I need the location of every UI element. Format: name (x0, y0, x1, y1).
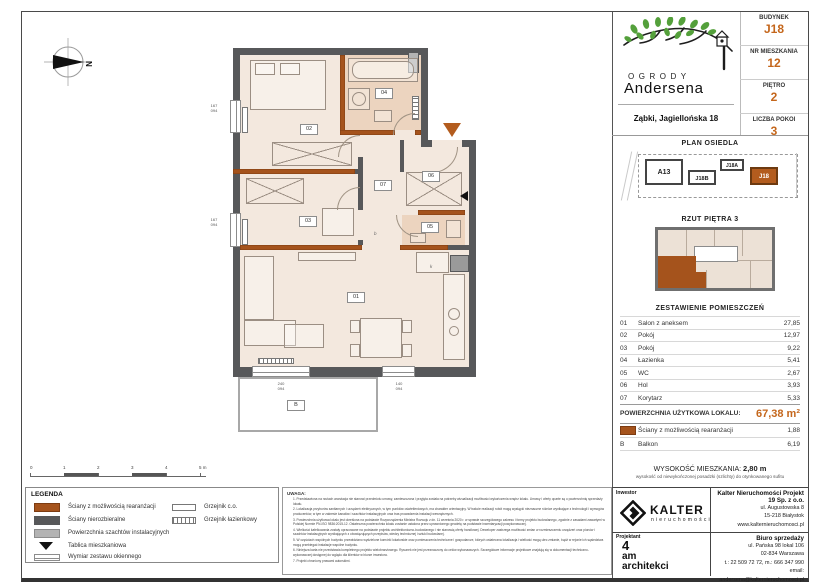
pillow (280, 63, 300, 75)
wall-right (469, 140, 476, 377)
project-address: Ząbki, Jagiellońska 18 (612, 104, 740, 134)
chair (402, 344, 412, 357)
chair (350, 320, 360, 333)
building-j18b: J18B (688, 170, 716, 185)
desk-room03 (322, 208, 354, 236)
legend-radiator-icon (172, 504, 196, 511)
kitchen-sink (448, 308, 460, 320)
wall-bottom-1 (233, 367, 252, 377)
wall-corridor-left-end (358, 240, 363, 245)
highlighted-apartment (658, 256, 696, 288)
title-block: Inwestor KALTER nieruchomości Kalter Nie… (612, 487, 808, 575)
wardrobe-room03 (246, 178, 304, 204)
orange-wall-wc-top (418, 210, 465, 215)
rooms-table-title: ZESTAWIENIE POMIESZCZEŃ (612, 305, 808, 312)
toilet (446, 220, 461, 238)
kitchen-mark: k (430, 264, 432, 269)
balcony-door-window (252, 366, 310, 377)
table-row: 04Łazienka5,41 (620, 354, 800, 367)
sales-office: Biuro sprzedaży ul. Pańska 98 lokal 106 … (714, 535, 804, 584)
road-line (796, 153, 797, 197)
total-row: POWIERZCHNIA UŻYTKOWA LOKALU: 67,38 m² (620, 404, 800, 423)
rooms-table: 01Salon z aneksem27,85 02Pokój12,97 03Po… (620, 316, 800, 451)
window-dim-1: 167094 (201, 104, 227, 113)
kalter-logo-icon (620, 500, 646, 526)
radiator (242, 107, 248, 133)
chair (402, 320, 412, 333)
legend-swatch-gray (34, 529, 60, 538)
tv-cabinet (298, 252, 356, 261)
corridor-mark: b (374, 231, 377, 236)
room-label-04: 04 (375, 88, 393, 99)
bathtub-inner (352, 61, 414, 79)
height-value: 2,80 m (743, 464, 766, 473)
legend-title: LEGENDA (31, 491, 63, 498)
balcony-row: B Balkon 6,19 (620, 437, 800, 450)
kitchen-upper-counter (416, 252, 449, 273)
road-line (621, 151, 632, 200)
room-label-02: 02 (300, 124, 318, 135)
building-a13: A13 (645, 159, 683, 185)
compass-icon: N (40, 34, 96, 90)
dining-table (360, 318, 402, 358)
info-value-apartment: 12 (740, 56, 808, 70)
scale-bar: 0 1 2 3 4 5 m (30, 465, 210, 481)
notes-title: UWAGA: (287, 491, 607, 496)
room-label-07: 07 (374, 180, 392, 191)
sales-phone: t.: 22 509 72 72, m.: 666 347 990 (714, 559, 804, 567)
sofa (244, 256, 274, 320)
orange-wall-bath-left (340, 55, 345, 135)
total-area-value: 67,38 m² (756, 408, 800, 420)
tree-branch-logo-icon (620, 17, 736, 71)
table-row: 07Korytarz5,33 (620, 391, 800, 404)
investor-label: Inwestor (616, 490, 637, 496)
building-j18a: J18A (720, 159, 744, 171)
header-block: OGRODY Andersena Ząbki, Jagiellońska 18 … (612, 12, 808, 135)
company-name: Kalter Nieruchomości Projekt 19 Sp. z o.… (714, 490, 804, 504)
highlighted-apartment-ext (696, 272, 706, 288)
room-label-06: 06 (422, 171, 440, 182)
orange-wall-bath-corner (415, 130, 421, 135)
info-value-floor: 2 (740, 90, 808, 104)
window-dim-4: 140094 (386, 382, 412, 391)
plan-sheet: N (21, 11, 809, 582)
company-website: www.kalternieruchomosci.pl (714, 521, 804, 529)
compass-north-label: N (84, 61, 93, 67)
floor-overview-title: RZUT PIĘTRA 3 (612, 216, 808, 223)
window-left-2 (230, 213, 241, 247)
height-note: WYSOKOŚĆ MIESZKANIA: 2,80 m wysokość od … (612, 464, 808, 479)
site-plan-map: A13 J18B J18A J18 (618, 151, 802, 203)
chair (350, 344, 360, 357)
orange-wall-swatch (620, 426, 636, 435)
coffee-table (284, 324, 324, 348)
wall-top (233, 48, 428, 55)
washing-machine-drum (352, 92, 366, 106)
legend-towel-radiator-icon (172, 517, 196, 524)
room-label-05: 05 (421, 222, 439, 233)
balcony-label: B (287, 400, 305, 411)
total-label: POWIERZCHNIA UŻYTKOWA LOKALU: (620, 410, 756, 417)
wall-entry-a (421, 140, 432, 147)
entry-arrow-icon (460, 191, 468, 201)
legend-swatch-orange (34, 503, 60, 512)
table-row: 05WC2,67 (620, 366, 800, 379)
info-value-building: J18 (740, 22, 808, 36)
orange-wall-bath-bottom (340, 130, 395, 135)
legend-window-icon (34, 554, 60, 561)
walls-row: Ściany z możliwością rearanżacji 1,88 (620, 423, 800, 438)
radiator (258, 358, 294, 364)
designer-logo: 4 am architekci (622, 540, 669, 571)
logo-line2: Andersena (624, 80, 704, 97)
window-dim-2: 167094 (201, 218, 227, 227)
wall-entry-notch (421, 48, 428, 147)
radiator (242, 219, 248, 245)
table-row: 01Salon z aneksem27,85 (620, 316, 800, 329)
info-label: PIĘTRO (740, 83, 808, 89)
company-address: Kalter Nieruchomości Projekt 19 Sp. z o.… (714, 490, 804, 529)
wall-hall-corridor (400, 140, 404, 172)
info-label: LICZBA POKOI (740, 117, 808, 123)
site-plan-title: PLAN OSIEDLA (612, 140, 808, 147)
info-label: BUDYNEK (740, 15, 808, 21)
stair-core (694, 246, 738, 262)
room-label-01: 01 (347, 292, 365, 303)
wall-bottom-3 (415, 367, 476, 377)
room-label-03: 03 (299, 216, 317, 227)
sales-office-label: Biuro sprzedaży (714, 535, 804, 542)
table-row: 06Hol3,93 (620, 379, 800, 392)
table-row: 03Pokój9,22 (620, 341, 800, 354)
wall-left-1 (233, 48, 240, 100)
notes-box: UWAGA: 1. Przedstawiona na rzutach aranż… (282, 487, 612, 575)
wall-kitchen-top (448, 245, 469, 250)
bathroom-sink (374, 110, 392, 122)
floor-overview-map (655, 227, 775, 291)
legend-board-icon (39, 542, 53, 550)
pillow (255, 63, 275, 75)
window-left-1 (230, 100, 241, 133)
window-bottom (382, 366, 415, 377)
orange-wall-02-03 (233, 169, 355, 174)
investor-name: KALTER (650, 503, 704, 517)
building-j18-highlighted: J18 (750, 167, 778, 185)
orange-wall-wc-bottom (400, 245, 448, 250)
table-row: 02Pokój12,97 (620, 329, 800, 342)
apartment-card-page: N (0, 0, 830, 587)
legend-swatch-dark (34, 516, 60, 525)
orange-wall-03-salon (240, 245, 362, 250)
investor-sub: nieruchomości (651, 517, 712, 523)
info-label: NR MIESZKANIA (740, 49, 808, 55)
height-note-sub: wysokość od niewykończonej posadzki (szl… (612, 474, 808, 479)
shaft-kitchen (450, 255, 469, 272)
legend-box: LEGENDA Ściany z możliwością rearanżacji… (25, 487, 279, 563)
kitchen-hob (449, 326, 459, 336)
apartment-info: BUDYNEK J18 NR MIESZKANIA 12 PIĘTRO 2 LI… (740, 12, 808, 135)
apartment-board-icon (443, 123, 461, 137)
wall-bottom-2 (310, 367, 382, 377)
sales-email: email: andersena@kalternieruchomosci.pl (714, 567, 804, 584)
wall-left-3 (233, 247, 240, 367)
window-dim-3: 240094 (268, 382, 294, 391)
balcony-outline (238, 377, 378, 432)
